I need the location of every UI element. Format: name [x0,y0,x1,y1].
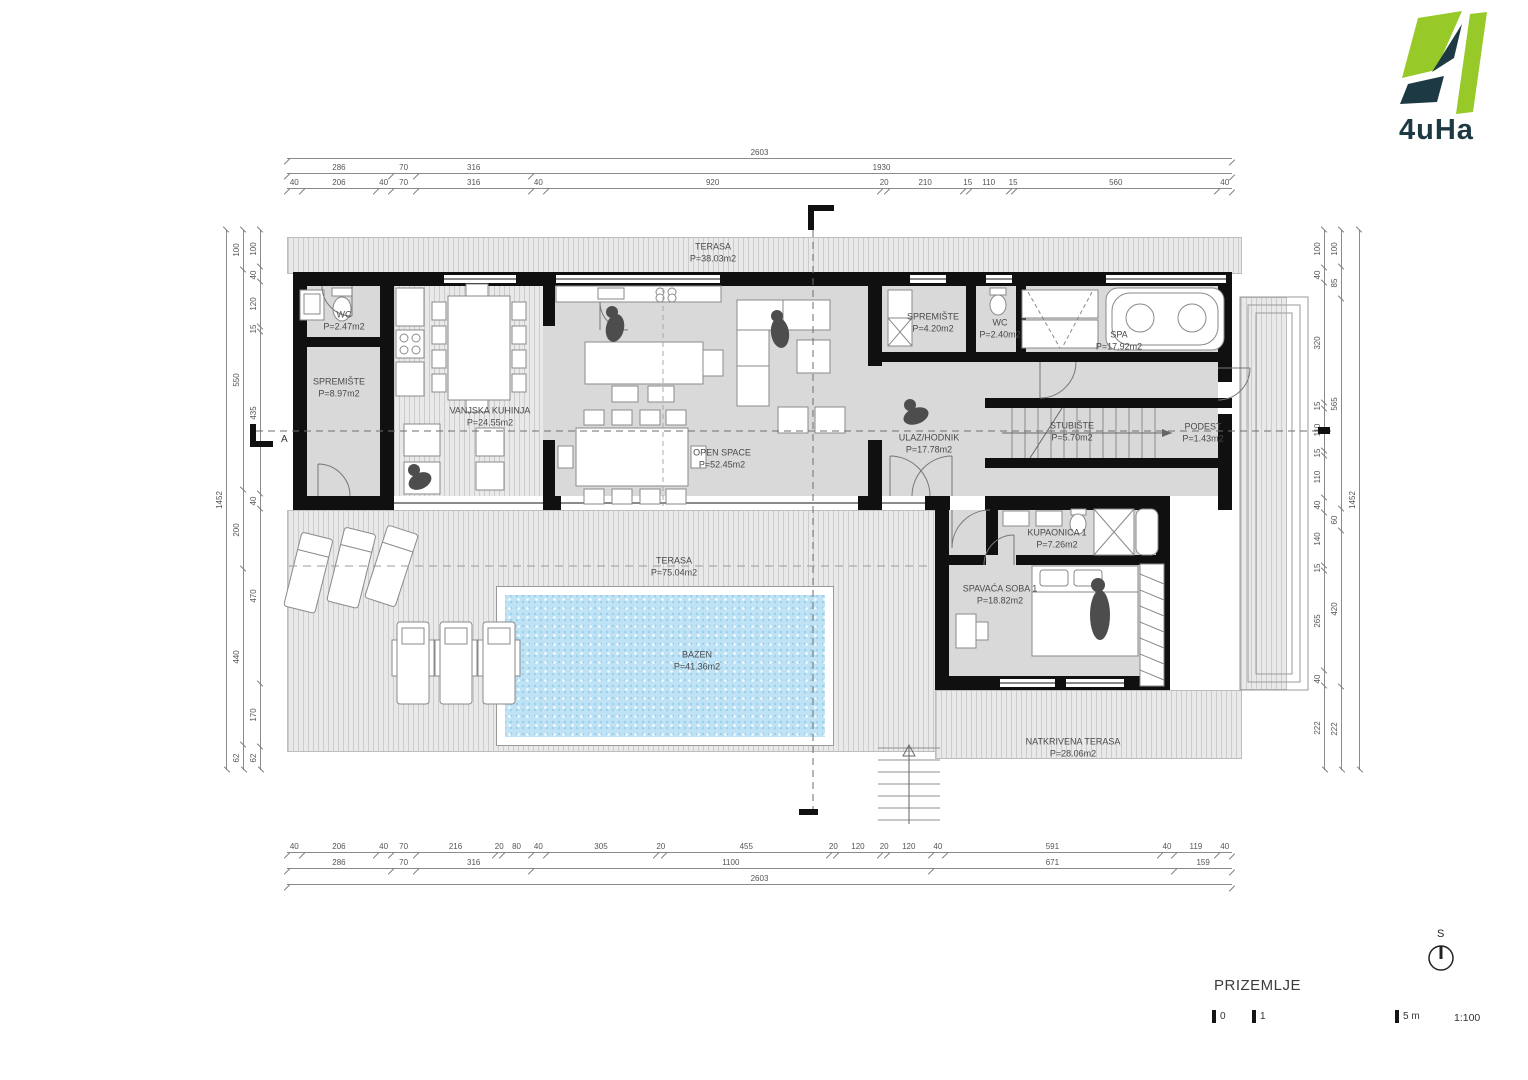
dimension-segment: 140 [1312,513,1325,566]
dimension-value: 286 [287,859,391,867]
dim-col-left-coarse: 10055020044062 [231,230,244,770]
dimension-segment: 316 [416,856,531,869]
scalebar-tick-0: 0 [1212,1010,1226,1023]
dimension-value: 170 [250,709,258,722]
dimension-segment: 40 [1160,840,1175,853]
exterior-stairs [878,745,940,824]
wall [949,555,986,565]
dimension-segment: 316 [416,176,531,189]
dimension-segment: 320 [1312,283,1325,404]
dimension-segment: 455 [664,840,829,853]
dimension-value: 159 [1174,859,1232,867]
dimension-segment: 1100 [531,856,931,869]
window [1106,275,1226,283]
dimension-segment: 40 [376,840,391,853]
room-label-kupaonica: KUPAONICA 1P=7.26m2 [1027,527,1086,550]
dimension-value: 440 [233,651,241,664]
dimension-value: 70 [391,179,416,187]
dimension-value: 40 [376,843,391,851]
room-label-bazen: BAZENP=41.36m2 [674,649,720,672]
dimension-segment: 435 [248,332,261,494]
window [556,275,720,283]
dimension-segment: 120 [248,282,261,327]
dimension-value: 40 [531,179,546,187]
dimension-value: 1930 [531,164,1232,172]
dimension-value: 435 [250,406,258,419]
wall [293,286,307,510]
room-label-terasa-top: TERASAP=38.03m2 [690,241,736,264]
tick-mark [1212,1010,1216,1023]
dimension-segment: 62 [248,747,261,770]
dimension-value: 62 [250,754,258,763]
dimension-segment: 420 [1329,531,1342,687]
sliding-glass-door [394,499,543,507]
dimension-value: 316 [416,179,531,187]
north-arrow: S [1422,926,1462,978]
dimension-segment: 40 [376,176,391,189]
wall [986,510,998,555]
floor-plan-sheet: 4uHa 2603 286703161930 40206407031640920… [0,0,1528,1080]
dimension-segment: 85 [1329,267,1342,299]
dimension-segment: 222 [1312,686,1325,770]
wall [293,337,394,347]
scalebar-tick-5m: 5 m [1395,1010,1420,1023]
dimension-segment: 62 [231,745,244,770]
room-label-podest: PODESTP=1.43m2 [1182,421,1223,444]
wall [858,496,882,510]
wall [293,272,1232,286]
dimension-segment: 100 [1312,230,1325,268]
swimming-pool [497,587,833,745]
dimension-value: 316 [416,164,531,172]
wall [1156,510,1170,676]
dimension-value: 60 [1331,516,1339,525]
scalebar-tick-1: 1 [1252,1010,1266,1023]
dimension-value: 70 [391,843,416,851]
dimension-segment: 110 [969,176,1009,189]
dimension-segment: 100 [1329,230,1342,267]
dimension-segment: 591 [945,840,1160,853]
dimension-value: 85 [1331,279,1339,288]
dim-col-right-coarse: 1008556560420222 [1329,230,1342,770]
scale-ratio: 1:100 [1454,1012,1480,1024]
dimension-segment: 1452 [1347,230,1360,770]
dimension-segment: 120 [836,840,880,853]
floor-outdoor-kitchen [394,286,543,496]
dimension-segment: 70 [391,840,416,853]
dimension-value: 100 [1314,242,1322,255]
dimension-value: 1452 [216,491,224,509]
dim-row-bottom-total: 2603 [287,872,1232,885]
room-label-stubiste: STUBIŠTEP=5.70m2 [1050,420,1094,443]
dimension-value: 40 [287,179,302,187]
room-label-terasa-bottom: TERASAP=75.04m2 [651,555,697,578]
dimension-value: 100 [1331,242,1339,255]
logo-icon [1398,8,1498,120]
terrace-right-strip [1240,297,1287,690]
dimension-segment: 40 [1217,176,1232,189]
room-label-wc1: WCP=2.47m2 [323,309,364,332]
dimension-segment: 20 [495,840,502,853]
dimension-value: 110 [1314,471,1322,484]
dimension-segment: 470 [248,509,261,684]
dim-row-bottom-fine: 4020640702162080403052045520120201204059… [287,840,1232,853]
dim-row-bottom-coarse: 286703161100671159 [287,856,1232,869]
dimension-segment: 100 [248,230,261,267]
dimension-segment: 20 [656,840,663,853]
dimension-value: 20 [880,179,887,187]
dimension-segment: 206 [302,840,377,853]
window [444,275,516,283]
dimension-segment: 119 [1174,840,1217,853]
dimension-value: 320 [1314,336,1322,349]
dimension-value: 286 [287,164,391,172]
dimension-segment: 70 [391,161,416,174]
dimension-segment: 40 [931,840,946,853]
dimension-value: 420 [1331,603,1339,616]
dimension-value: 470 [250,590,258,603]
dimension-value: 119 [1174,843,1217,851]
dimension-value: 20 [495,843,502,851]
dimension-segment: 40 [1217,840,1232,853]
dimension-value: 216 [416,843,494,851]
dimension-value: 40 [931,843,946,851]
dimension-segment: 110 [1312,409,1325,450]
tick-mark [1252,1010,1256,1023]
dim-row-top-total: 2603 [287,146,1232,159]
dimension-segment: 80 [502,840,531,853]
dimension-segment: 210 [887,176,963,189]
dimension-value: 200 [233,523,241,536]
room-label-spavaca-soba: SPAVAĆA SOBA 1P=18.82m2 [963,583,1038,606]
dimension-segment: 1930 [531,161,1232,174]
dimension-segment: 20 [829,840,836,853]
dimension-segment: 560 [1014,176,1217,189]
dimension-value: 20 [880,843,887,851]
dimension-value: 920 [546,179,880,187]
dimension-segment: 20 [880,176,887,189]
tick-mark [1395,1010,1399,1023]
dimension-value: 265 [1314,615,1322,628]
dimension-segment: 316 [416,161,531,174]
dimension-segment: 565 [1329,299,1342,509]
dimension-value: 20 [829,843,836,851]
dim-col-left-fine: 10040120154354047017062 [248,230,261,770]
dimension-value: 120 [836,843,880,851]
window [910,275,946,283]
dimension-segment: 2603 [287,146,1232,159]
dimension-segment: 40 [287,840,302,853]
dimension-value: 206 [302,843,377,851]
dimension-segment: 70 [391,856,416,869]
dimension-value: 671 [931,859,1175,867]
dimension-value: 222 [1314,721,1322,734]
dimension-value: 70 [391,859,416,867]
dimension-segment: 170 [248,684,261,747]
dimension-segment: 440 [231,569,244,745]
room-label-open-space: OPEN SPACEP=52.45m2 [693,447,751,470]
dim-row-top-fine: 4020640703164092020210151101556040 [287,176,1232,189]
dimension-value: 100 [250,242,258,255]
dim-col-left-total: 1452 [214,230,227,770]
room-label-spremiste1: SPREMIŠTEP=8.97m2 [313,376,365,399]
dimension-segment: 40 [287,176,302,189]
north-label: S [1437,928,1444,940]
wall [1218,286,1232,382]
wall [985,398,1232,408]
dimension-value: 40 [376,179,391,187]
dimension-value: 316 [416,859,531,867]
room-label-wc2: WCP=2.40m2 [979,317,1020,340]
dimension-value: 210 [887,179,963,187]
window [1066,679,1124,687]
wall [543,286,555,326]
room-label-ulaz-hodnik: ULAZ/HODNIKP=17.78m2 [899,432,960,455]
dim-row-top-coarse: 286703161930 [287,161,1232,174]
room-label-vanjska-kuhinja: VANJSKA KUHINJAP=24.55m2 [450,405,531,428]
dimension-segment: 265 [1312,571,1325,671]
dimension-value: 591 [945,843,1160,851]
dimension-value: 100 [233,243,241,256]
dimension-value: 305 [546,843,657,851]
dimension-value: 70 [391,164,416,172]
window [1000,679,1055,687]
wall [868,286,882,366]
dimension-segment: 671 [931,856,1175,869]
logo-wordmark: 4uHa [1399,114,1474,147]
wall [985,458,1218,468]
dimension-segment: 70 [391,176,416,189]
dimension-segment: 920 [546,176,880,189]
sliding-glass-door [882,499,925,507]
dimension-value: 1452 [1349,491,1357,509]
dimension-value: 1100 [531,859,931,867]
dimension-value: 40 [1160,843,1175,851]
dimension-value: 550 [233,373,241,386]
dimension-segment: 40 [531,840,546,853]
dimension-value: 206 [302,179,377,187]
wall [985,496,1170,510]
room-label-spa: SPAP=17.92m2 [1096,329,1142,352]
dimension-value: 40 [531,843,546,851]
wall [925,496,950,510]
dimension-value: 40 [1217,843,1232,851]
wall [868,440,882,496]
dimension-segment: 550 [231,270,244,490]
dimension-segment: 286 [287,161,391,174]
dimension-value: 110 [969,179,1009,187]
dimension-value: 2603 [287,149,1232,157]
wall [543,496,561,510]
wall [935,510,949,676]
wall [380,286,394,510]
dimension-segment: 120 [887,840,931,853]
dimension-value: 222 [1331,722,1339,735]
dimension-value: 80 [502,843,531,851]
plan-title: PRIZEMLJE [1214,977,1301,994]
room-label-spremiste2: SPREMIŠTEP=4.20m2 [907,311,959,334]
dimension-segment: 206 [302,176,377,189]
window [986,275,1012,283]
dimension-segment: 200 [231,490,244,570]
dimension-segment: 100 [231,230,244,270]
dimension-value: 40 [1217,179,1232,187]
dim-col-right-total: 1452 [1347,230,1360,770]
dimension-value: 120 [887,843,931,851]
dimension-segment: 305 [546,840,657,853]
dimension-segment: 1452 [214,230,227,770]
dimension-value: 565 [1331,397,1339,410]
section-label-a: A [281,434,288,445]
wall [293,496,394,510]
wall [1026,352,1218,362]
dimension-value: 2603 [287,875,1232,883]
sliding-glass-door [561,499,858,507]
dimension-value: 140 [1314,533,1322,546]
dimension-value: 560 [1014,179,1217,187]
dimension-segment: 20 [880,840,887,853]
wall [543,440,555,496]
terrace-top [287,237,1242,274]
dim-col-right-fine: 100403201511015110401401526540222 [1312,230,1325,770]
dimension-value: 62 [233,753,241,762]
dimension-value: 40 [287,843,302,851]
dimension-segment: 159 [1174,856,1232,869]
dimension-segment: 222 [1329,687,1342,770]
dimension-segment: 286 [287,856,391,869]
dimension-value: 20 [656,843,663,851]
dimension-value: 120 [250,298,258,311]
wall [882,352,1026,362]
dimension-segment: 2603 [287,872,1232,885]
wall [966,286,976,362]
dimension-segment: 110 [1312,456,1325,497]
dimension-segment: 40 [531,176,546,189]
wall [1016,555,1156,565]
room-label-natkrivena-terasa: NATKRIVENA TERASAP=28.06m2 [1026,736,1121,759]
dimension-value: 110 [1314,423,1322,436]
dimension-value: 455 [664,843,829,851]
dimension-segment: 216 [416,840,494,853]
